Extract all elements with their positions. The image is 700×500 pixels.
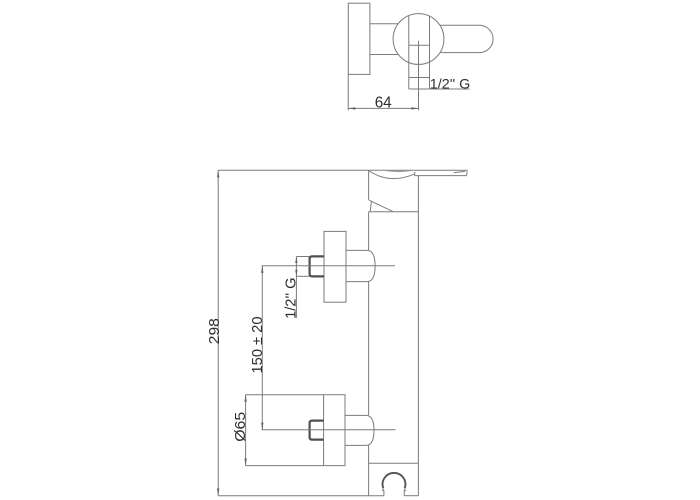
svg-text:Ø65: Ø65 (233, 412, 249, 442)
svg-text:150 ± 20: 150 ± 20 (250, 317, 266, 374)
svg-text:1/2'' G: 1/2'' G (284, 277, 300, 319)
svg-text:1/2'' G: 1/2'' G (430, 75, 471, 91)
svg-text:64: 64 (375, 95, 392, 112)
svg-text:298: 298 (207, 318, 223, 344)
